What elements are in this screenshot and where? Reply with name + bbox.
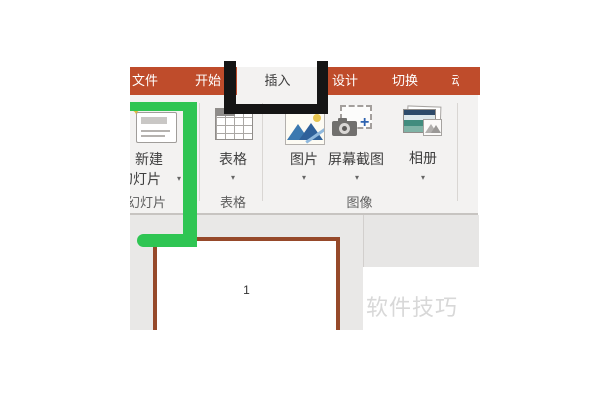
tab-animations-partial[interactable]: 动 (448, 67, 459, 95)
photo-album-icon (403, 106, 443, 140)
plus-icon: + (360, 115, 369, 131)
screenshot-label: 屏幕截图 (326, 149, 386, 169)
green-highlight-bottom (137, 234, 197, 247)
tab-home[interactable]: 开始 (193, 67, 223, 95)
new-slide-label-line2: 幻灯片 (130, 169, 179, 188)
tab-transitions[interactable]: 切换 (390, 67, 420, 95)
slide-text-line (141, 130, 170, 132)
new-slide-label-text: 幻灯片 (130, 169, 161, 188)
powerpoint-window: 文件 开始 插入 设计 切换 动 ✦ 新建 幻灯片 ▾ (0, 0, 600, 400)
tab-file[interactable]: 文件 (131, 67, 159, 95)
chevron-down-icon[interactable]: ▾ (355, 174, 359, 182)
sun-icon (313, 114, 321, 122)
watermark-text: 软件技巧 (366, 290, 458, 322)
slide-thumbnail[interactable]: 1 (153, 237, 340, 330)
group-label-table: 表格 (214, 192, 252, 211)
new-slide-icon (136, 112, 177, 143)
chevron-down-icon[interactable]: ▾ (421, 174, 425, 182)
camera-lens (342, 126, 347, 131)
slide-number: 1 (157, 241, 336, 297)
group-label-slides-text: 幻灯片 (130, 192, 166, 211)
group-separator (199, 103, 200, 201)
picture-icon (285, 111, 325, 145)
table-label: 表格 (214, 149, 252, 169)
picture-label: 图片 (285, 149, 323, 169)
chevron-down-icon[interactable]: ▾ (302, 174, 306, 182)
slide-text-line (141, 135, 165, 137)
photo-album-label: 相册 (407, 148, 439, 168)
black-highlight-bottom (224, 104, 328, 114)
chevron-down-icon[interactable]: ▾ (177, 175, 181, 183)
tab-design[interactable]: 设计 (330, 67, 360, 95)
group-separator (457, 103, 458, 201)
ribbon-tab-bar: 文件 开始 插入 设计 切换 动 (130, 67, 480, 95)
tab-animations-label: 动 (448, 67, 459, 95)
tab-insert-active[interactable]: 插入 (237, 67, 318, 95)
group-label-image: 图像 (262, 192, 457, 211)
new-slide-label-line1: 新建 (133, 149, 165, 169)
mountain-shape (431, 125, 441, 133)
chevron-down-icon[interactable]: ▾ (231, 174, 235, 182)
slide-title-bar (141, 117, 167, 124)
screenshot-icon: + (332, 103, 376, 143)
group-separator (262, 103, 263, 201)
green-highlight-right (183, 102, 197, 247)
group-label-slides: 幻灯片 (130, 192, 174, 211)
small-photo (423, 119, 442, 136)
slide-area-right-background (363, 215, 479, 267)
